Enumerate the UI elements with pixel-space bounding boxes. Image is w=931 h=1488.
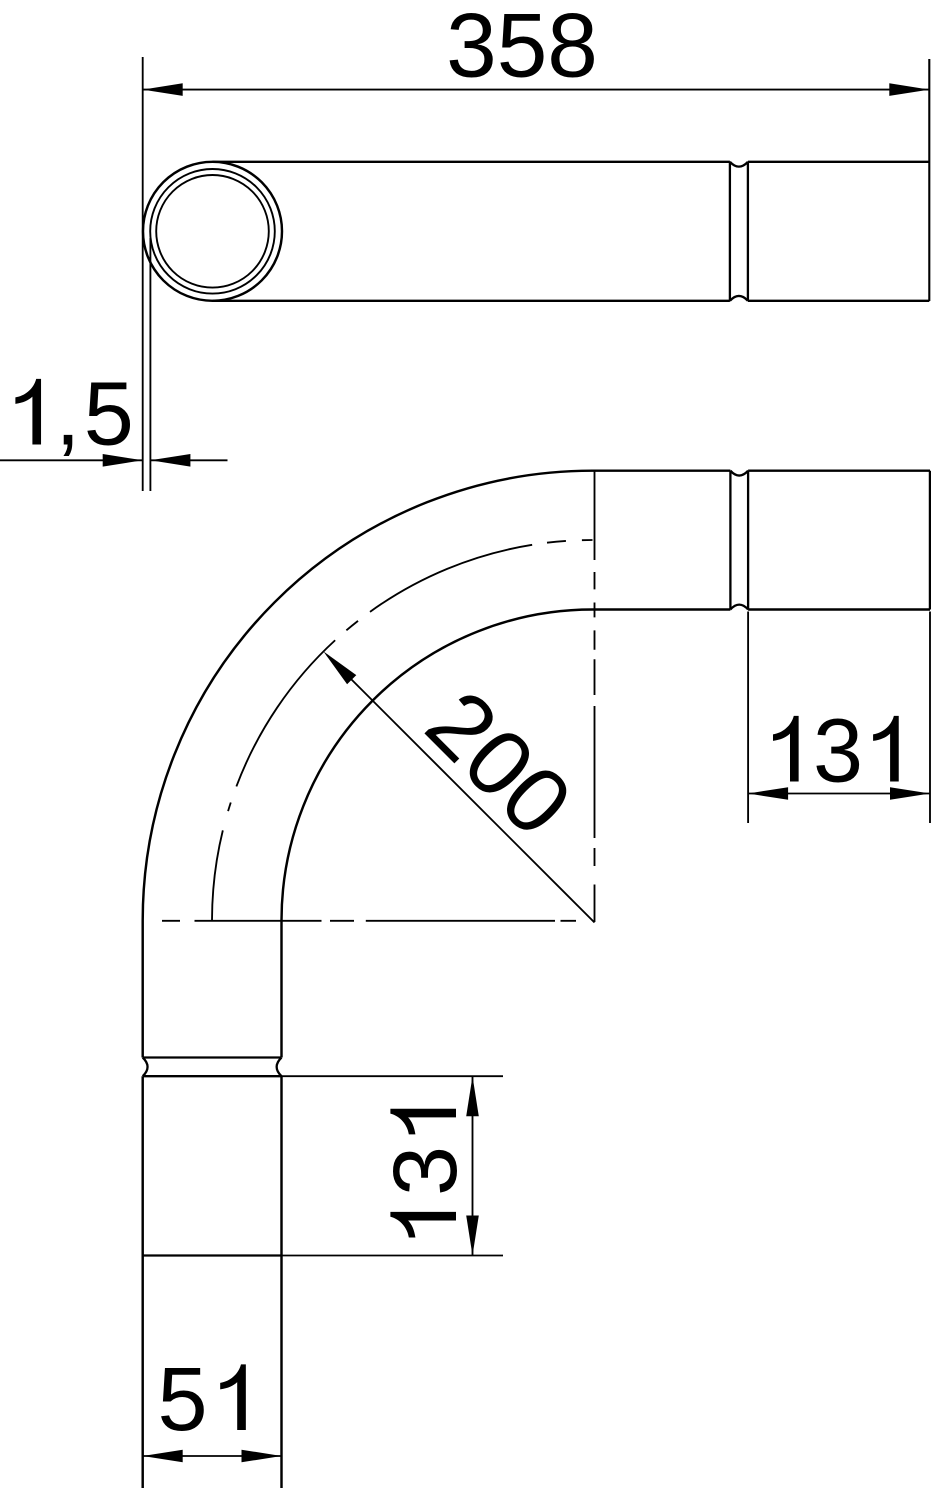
svg-text:5: 5 bbox=[84, 365, 134, 465]
svg-text:5: 5 bbox=[157, 1350, 207, 1450]
svg-text:,: , bbox=[55, 365, 80, 465]
svg-text:358: 358 bbox=[446, 0, 598, 97]
svg-text:3: 3 bbox=[376, 1146, 476, 1196]
svg-text:3: 3 bbox=[813, 702, 863, 802]
